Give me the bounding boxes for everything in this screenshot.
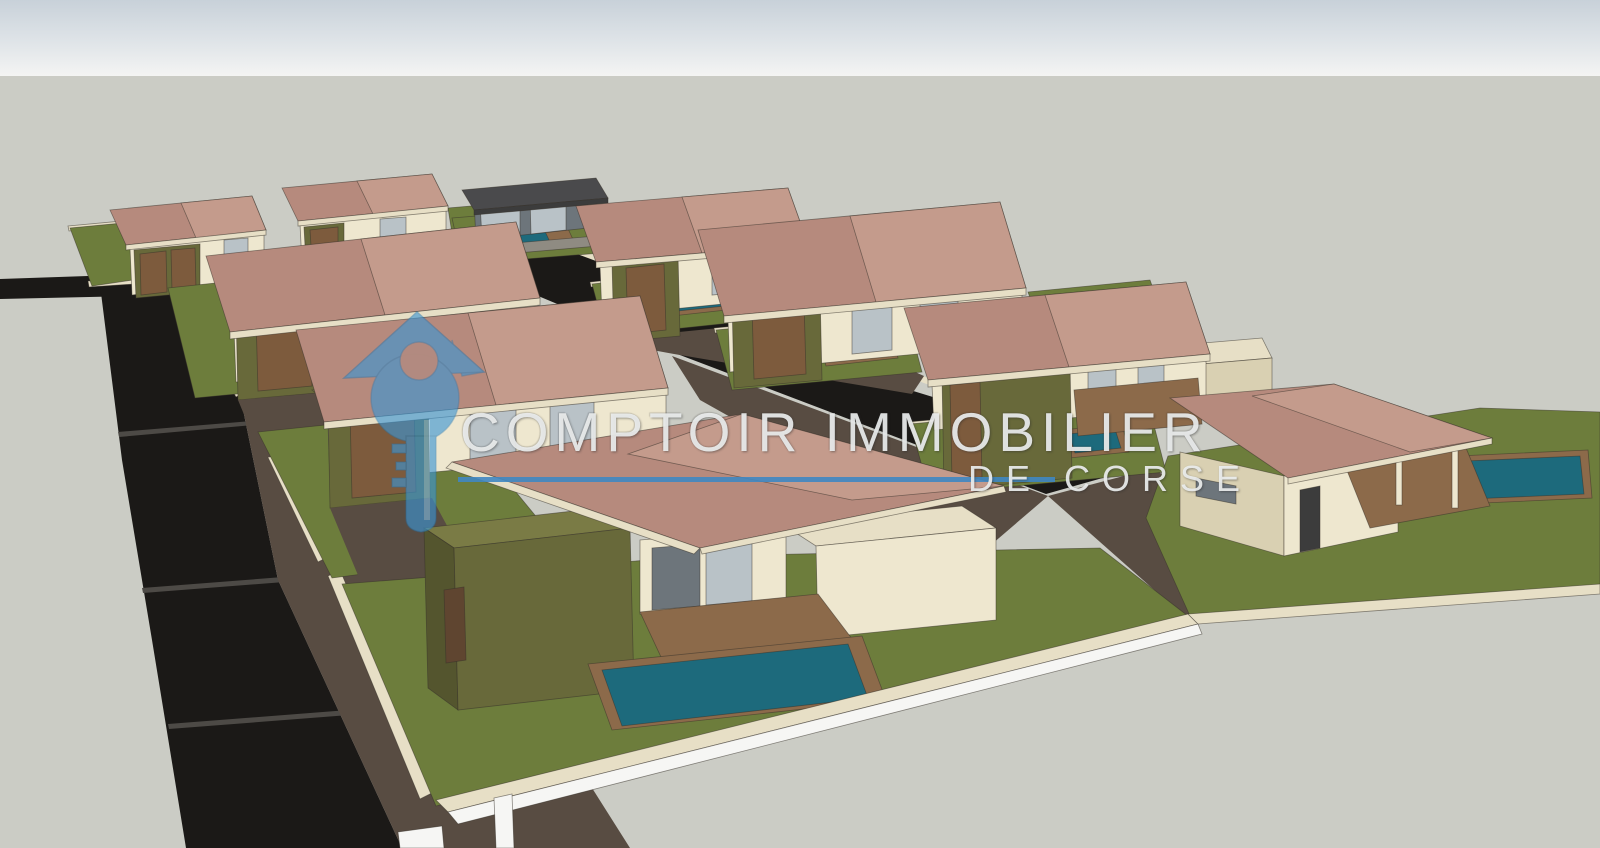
logo-key-tooth-3 [392,478,406,487]
villa1-garage-door-1 [140,251,167,295]
villa1-garage-door-2 [171,248,196,291]
villa5-window-1 [852,304,892,354]
logo-key-tooth-1 [392,444,406,453]
villa7-porch-post-2 [1452,444,1458,508]
white-wall-piece-1 [494,794,514,848]
villa6-roof-hip [1045,282,1210,367]
sky [0,0,1600,76]
render-canvas [0,0,1600,848]
logo-shaft-highlight [424,420,430,520]
villa5-roof-hip [850,202,1026,302]
logo-round-window [400,342,438,380]
real-estate-3d-render: COMPTOIR IMMOBILIER DE CORSE [0,0,1600,848]
villa6-garage-door [950,382,982,480]
watermark-underline [458,477,1055,482]
villa10-garage-door [444,587,466,663]
villa7-door [1300,486,1320,552]
villa10-annex-front [816,528,996,638]
logo-key-shaft [406,436,436,532]
villa9-roof-hip [468,296,668,405]
logo-key-tooth-2 [396,462,406,470]
